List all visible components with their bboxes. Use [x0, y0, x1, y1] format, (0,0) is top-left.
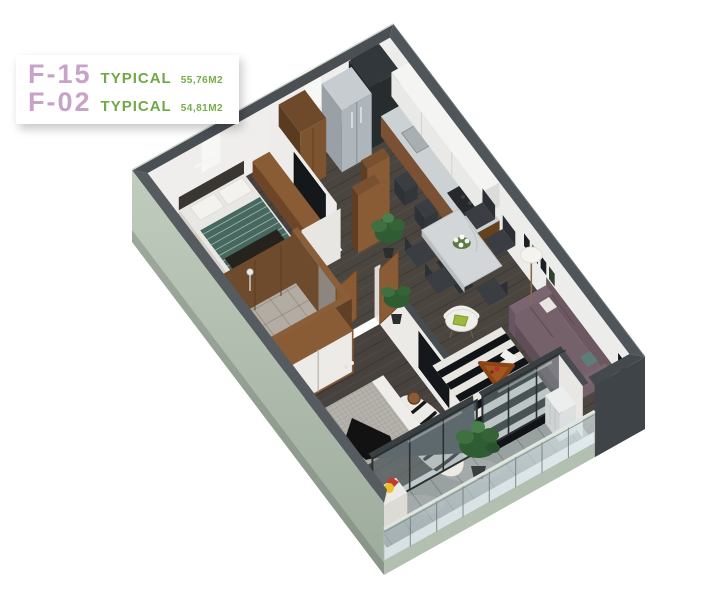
legend-row-f15: F-15 TYPICAL 55,76M2 [28, 60, 223, 88]
unit-code: F-15 [28, 60, 92, 88]
unit-area: 54,81M2 [181, 104, 223, 115]
green-pillow [453, 315, 468, 326]
unit-typical-label: TYPICAL [101, 71, 172, 87]
unit-typical-label: TYPICAL [101, 99, 172, 115]
legend-card: F-15 TYPICAL 55,76M2 F-02 TYPICAL 54,81M… [16, 55, 239, 124]
floorplan-page: F-15 TYPICAL 55,76M2 F-02 TYPICAL 54,81M… [0, 0, 718, 600]
foot-stool [408, 392, 420, 404]
legend-row-f02: F-02 TYPICAL 54,81M2 [28, 88, 223, 116]
wood-column [352, 175, 381, 254]
unit-code: F-02 [28, 88, 92, 116]
unit-area: 55,76M2 [181, 76, 223, 87]
